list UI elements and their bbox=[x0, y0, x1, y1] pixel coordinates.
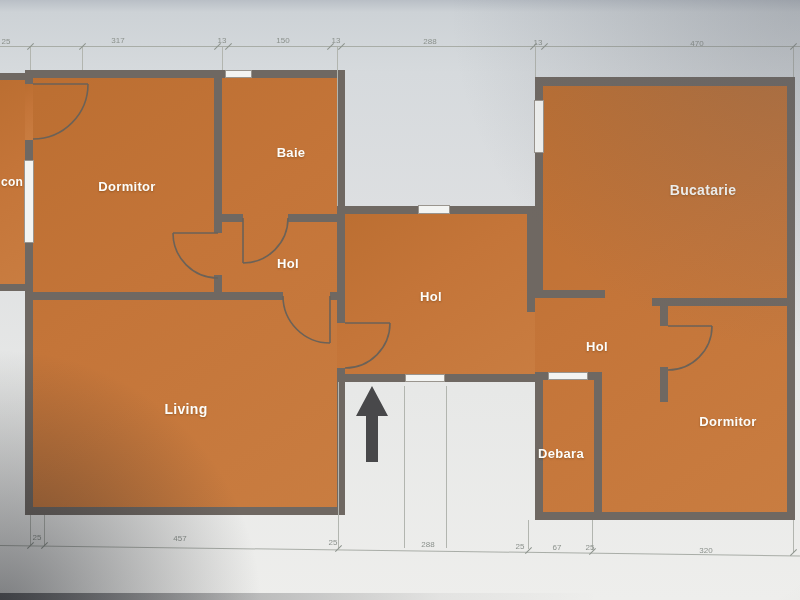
pantry-threshold bbox=[548, 372, 588, 380]
room-label-pantry: Debara bbox=[538, 446, 584, 461]
room-label-hall-small: Hol bbox=[277, 256, 299, 271]
dimension-label: 288 bbox=[421, 540, 434, 549]
extension-line bbox=[528, 520, 529, 549]
dimension-tick bbox=[525, 547, 532, 554]
extension-line bbox=[404, 386, 405, 548]
wall bbox=[0, 73, 28, 80]
room-label-hall-right: Hol bbox=[586, 339, 608, 354]
dimension-label: 25 bbox=[516, 542, 525, 551]
wall bbox=[25, 140, 33, 160]
wall bbox=[527, 206, 535, 312]
room-label-bathroom: Baie bbox=[277, 145, 306, 160]
dimension-label: 320 bbox=[699, 546, 712, 555]
dimension-label: 13 bbox=[218, 36, 227, 45]
wall bbox=[288, 214, 345, 222]
wall bbox=[25, 292, 283, 300]
wall bbox=[535, 77, 795, 86]
room-label-living: Living bbox=[164, 401, 207, 417]
floor-plan-drawing: con Dormitor Baie Hol Hol Living Bucatar… bbox=[0, 0, 800, 600]
wall bbox=[450, 206, 535, 214]
room-label-hall-center: Hol bbox=[420, 289, 442, 304]
window-top-wall bbox=[225, 70, 252, 78]
dimension-label: 457 bbox=[173, 534, 186, 543]
room-label-bedroom-2: Dormitor bbox=[699, 414, 756, 429]
room-label-balcony: con bbox=[1, 175, 23, 189]
extension-line bbox=[793, 520, 794, 552]
extension-line bbox=[30, 515, 31, 546]
wall bbox=[445, 374, 535, 382]
extension-line bbox=[44, 515, 45, 546]
dimension-label: 288 bbox=[423, 37, 436, 46]
dimension-label: 13 bbox=[332, 36, 341, 45]
extension-line bbox=[535, 47, 536, 77]
wall bbox=[535, 372, 548, 380]
extension-line bbox=[446, 386, 447, 548]
wall bbox=[25, 507, 345, 515]
extension-line bbox=[338, 382, 339, 548]
wall bbox=[25, 243, 33, 515]
wall bbox=[337, 374, 405, 382]
extension-line bbox=[222, 47, 223, 70]
wall bbox=[25, 70, 33, 84]
extension-line bbox=[30, 47, 31, 70]
entrance-arrow-icon bbox=[356, 386, 388, 462]
dimension-label: 25 bbox=[586, 543, 595, 552]
window-center-hall bbox=[418, 205, 450, 214]
wall bbox=[0, 284, 28, 291]
wall bbox=[214, 70, 222, 233]
dimension-label: 150 bbox=[276, 36, 289, 45]
floor-plan-photo: con Dormitor Baie Hol Hol Living Bucatar… bbox=[0, 0, 800, 600]
window-kitchen bbox=[534, 100, 544, 153]
wall bbox=[535, 512, 795, 520]
wall bbox=[535, 77, 543, 100]
room-label-kitchen: Bucatarie bbox=[670, 182, 737, 198]
entrance-threshold bbox=[405, 374, 445, 382]
wall bbox=[594, 372, 602, 520]
extension-line bbox=[82, 47, 83, 70]
wall bbox=[652, 298, 795, 306]
extension-line bbox=[793, 47, 794, 77]
dimension-label: 317 bbox=[111, 36, 124, 45]
wall bbox=[337, 206, 418, 214]
wall bbox=[337, 70, 345, 323]
dimension-label: 470 bbox=[690, 39, 703, 48]
window-left-wall bbox=[24, 160, 34, 243]
wall bbox=[535, 290, 605, 298]
wall bbox=[660, 367, 668, 402]
dimension-label: 67 bbox=[553, 543, 562, 552]
wall bbox=[660, 298, 668, 326]
dimension-label: 13 bbox=[534, 38, 543, 47]
dimension-line-bottom bbox=[0, 545, 800, 556]
extension-line bbox=[337, 47, 338, 206]
balcony-door-gap bbox=[25, 84, 33, 140]
wall bbox=[222, 214, 243, 222]
dimension-label: 25 bbox=[2, 37, 11, 46]
dimension-line-top bbox=[0, 46, 800, 47]
room-label-bedroom-1: Dormitor bbox=[98, 179, 155, 194]
wall bbox=[535, 153, 543, 298]
dimension-label: 25 bbox=[33, 533, 42, 542]
dimension-label: 25 bbox=[329, 538, 338, 547]
wall bbox=[330, 292, 345, 300]
wall bbox=[25, 70, 345, 78]
